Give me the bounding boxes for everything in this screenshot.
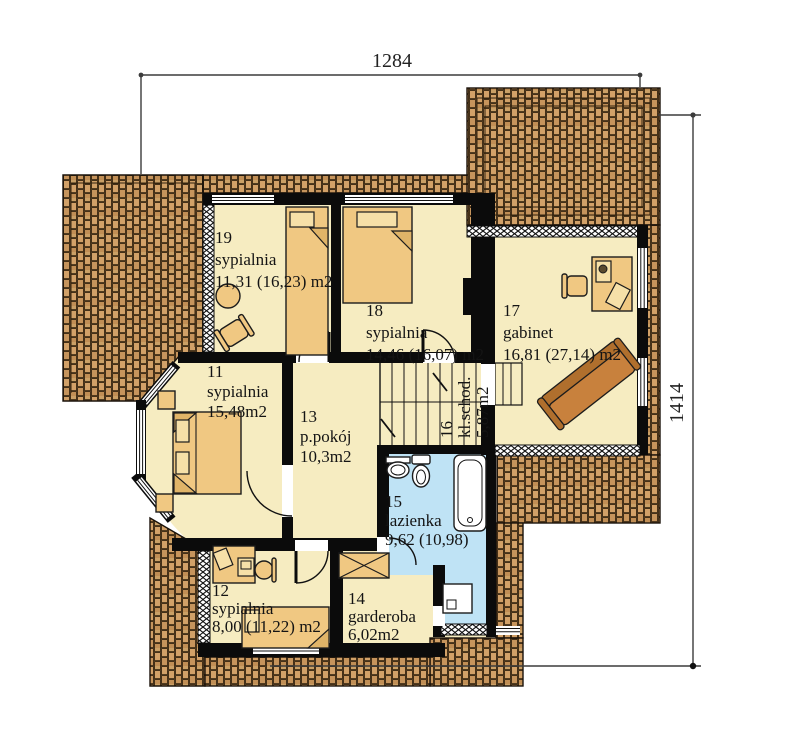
room-12-area: 8,00 (11,22) m2 [212,617,321,636]
room-13-number: 13 [300,407,317,426]
window-room18 [345,195,453,203]
room-12-name: sypialnia [212,599,274,618]
roof-top-strip [203,175,475,193]
room-17-number: 17 [503,301,521,320]
wall-room11-top [178,352,293,363]
wall-bath-right [486,452,496,637]
room-18-number: 18 [366,301,383,320]
roof-top-right [467,88,660,225]
dimension-width-label: 1284 [372,50,412,72]
room-15-area: 9,62 (10,98) [385,530,469,549]
wall-room12-left-insulated [198,551,210,643]
toilet [412,455,430,487]
wall-gabinet-bottom-insulated [495,445,640,456]
room-14-number: 14 [348,589,366,608]
room-12-number: 12 [212,581,229,600]
room-16-number: 16 [437,421,456,438]
chair-gabinet [562,274,587,298]
floor-plan-page: 19 sypialnia 11,31 (16,23) m2 18 sypialn… [0,0,800,753]
room-16-area: 5,87m2 [473,387,492,438]
room-18-area: 14,46 (16,07) m2 [366,345,484,364]
room-13-area: 10,3m2 [300,447,351,466]
room-19-name: sypialnia [215,250,277,269]
wall-19-18 [331,205,341,352]
room-14-area: 6,02m2 [348,625,399,644]
wall-bath-top [377,445,492,454]
room-11-name: sypialnia [207,382,269,401]
roof-bottom-strip [205,657,430,686]
room-16-name: kl.schod. [455,377,474,438]
chimney [463,278,493,315]
room-14-name: garderoba [348,607,416,626]
dimension-height-label: 1414 [666,383,688,423]
room-18-name: sypialnia [366,323,428,342]
bed-room18 [343,207,412,303]
wardrobe-garderoba [339,553,389,578]
room-19-area: 11,31 (16,23) m2 [215,272,332,291]
wall-gabinet-top-insulated [467,226,640,237]
window-roof-gap [496,626,520,635]
wall-mid-horizontal [172,538,383,551]
roof-below-gabinet [497,455,660,523]
window-room19 [212,195,274,203]
window-room11-left [137,410,145,474]
floor-plan: 19 sypialnia 11,31 (16,23) m2 18 sypialn… [0,0,800,753]
wall-bath-bottom-insulated [441,624,487,635]
room-11-area: 15,48m2 [207,402,267,421]
roof-bath-column [496,523,523,638]
room-15-name: lazienka [385,511,442,530]
washing-machine [443,584,472,613]
wall-left-insulated [203,205,214,352]
washbasin [386,457,410,478]
room-17-area: 16,81 (27,14) m2 [503,345,621,364]
room-11-number: 11 [207,362,223,381]
room-13-name: p.pokój [300,427,351,446]
room-19-number: 19 [215,228,232,247]
room-17-name: gabinet [503,323,553,342]
room-15-number: 15 [385,492,402,511]
desk-gabinet [592,257,632,311]
desk-room12 [213,546,255,583]
window-gabinet-1 [638,248,647,308]
bathtub [454,455,486,531]
